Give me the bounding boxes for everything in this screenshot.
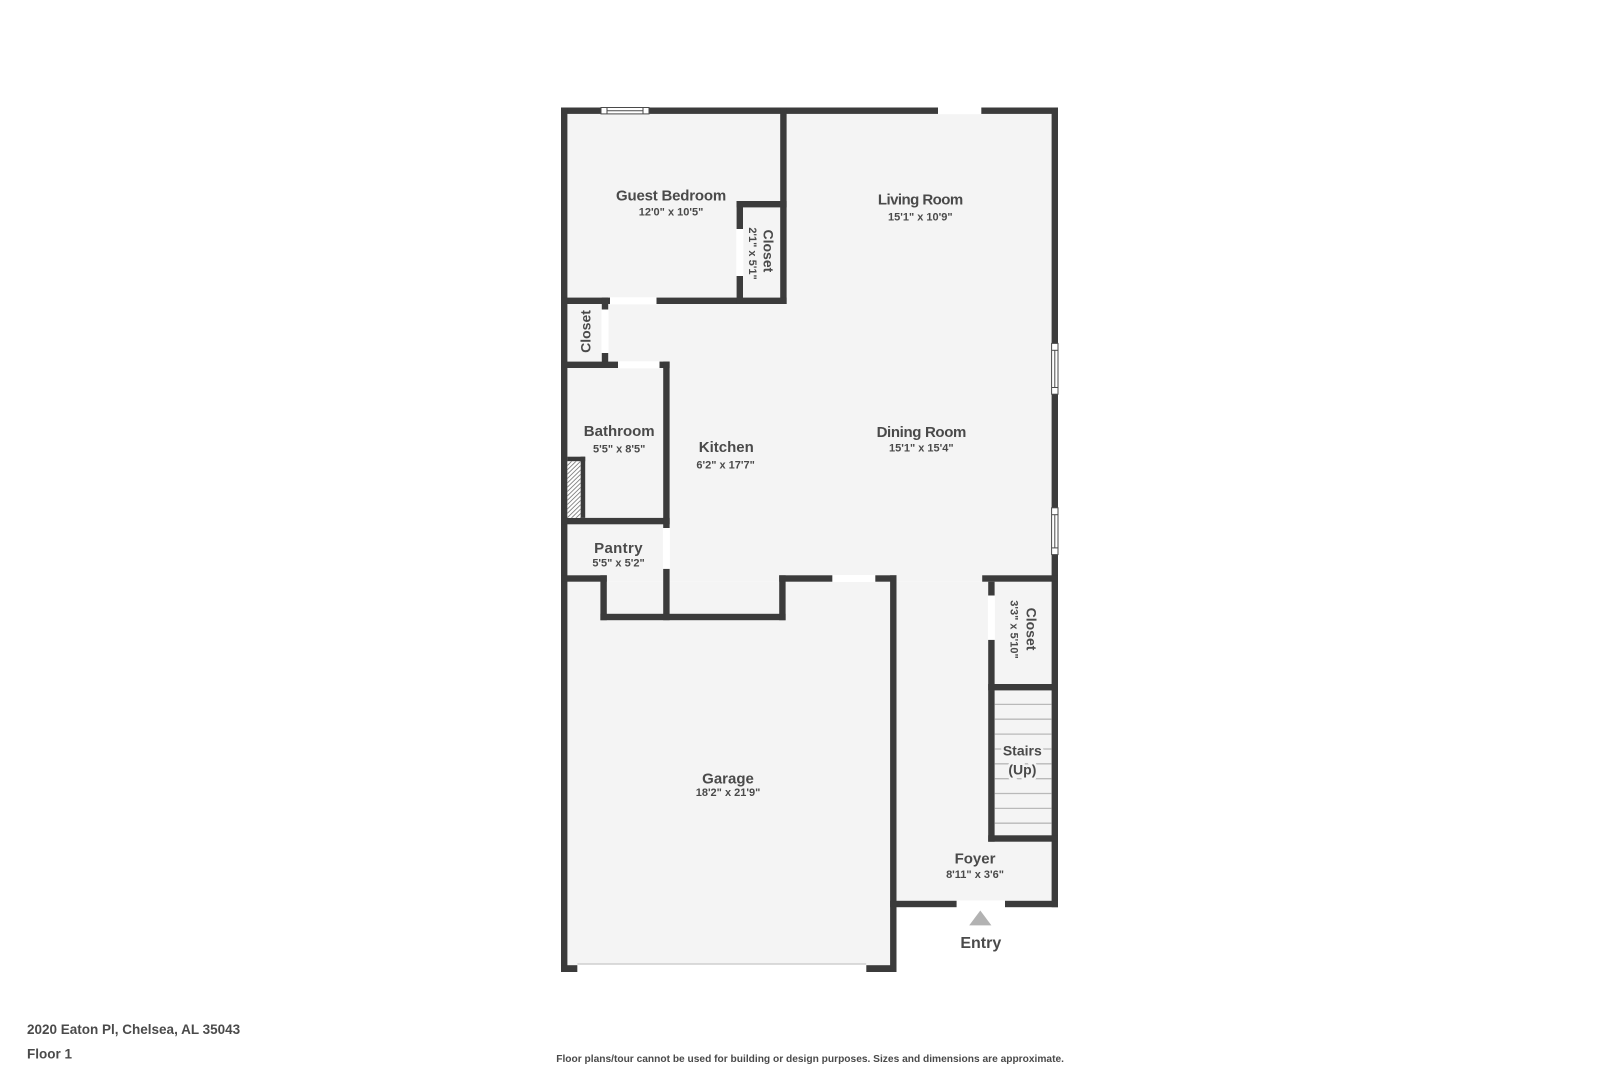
svg-text:8'11" x 3'6": 8'11" x 3'6" bbox=[946, 869, 1004, 881]
svg-text:3'3" x 5'10": 3'3" x 5'10" bbox=[1008, 600, 1020, 658]
svg-text:Stairs: Stairs bbox=[1003, 743, 1042, 759]
svg-text:Closet: Closet bbox=[1024, 608, 1040, 651]
svg-text:Floor 1: Floor 1 bbox=[27, 1046, 72, 1061]
svg-text:15'1" x 15'4": 15'1" x 15'4" bbox=[889, 443, 954, 455]
svg-text:Closet: Closet bbox=[578, 310, 594, 353]
svg-text:5'5" x 8'5": 5'5" x 8'5" bbox=[593, 444, 645, 456]
svg-text:Bathroom: Bathroom bbox=[584, 423, 655, 440]
svg-text:(Up): (Up) bbox=[1008, 762, 1036, 778]
svg-text:Closet: Closet bbox=[760, 230, 776, 273]
svg-text:6'2" x 17'7": 6'2" x 17'7" bbox=[696, 460, 754, 472]
svg-text:2020 Eaton Pl, Chelsea, AL 350: 2020 Eaton Pl, Chelsea, AL 35043 bbox=[27, 1022, 241, 1037]
svg-text:2'1" x 5'1": 2'1" x 5'1" bbox=[746, 227, 758, 279]
svg-text:Living Room: Living Room bbox=[878, 192, 963, 209]
svg-text:15'1" x 10'9": 15'1" x 10'9" bbox=[888, 211, 953, 223]
svg-text:18'2" x 21'9": 18'2" x 21'9" bbox=[696, 787, 761, 799]
svg-text:Garage: Garage bbox=[702, 771, 754, 788]
svg-text:Pantry: Pantry bbox=[594, 540, 643, 557]
svg-text:Entry: Entry bbox=[960, 935, 1001, 952]
svg-text:5'5" x 5'2": 5'5" x 5'2" bbox=[592, 557, 644, 569]
svg-text:Guest Bedroom: Guest Bedroom bbox=[616, 188, 726, 205]
svg-text:Foyer: Foyer bbox=[955, 850, 996, 867]
svg-text:12'0" x 10'5": 12'0" x 10'5" bbox=[639, 206, 704, 218]
svg-text:Dining Room: Dining Room bbox=[877, 424, 966, 441]
svg-text:Kitchen: Kitchen bbox=[699, 439, 754, 456]
svg-text:Floor plans/tour cannot be use: Floor plans/tour cannot be used for buil… bbox=[556, 1054, 1064, 1065]
